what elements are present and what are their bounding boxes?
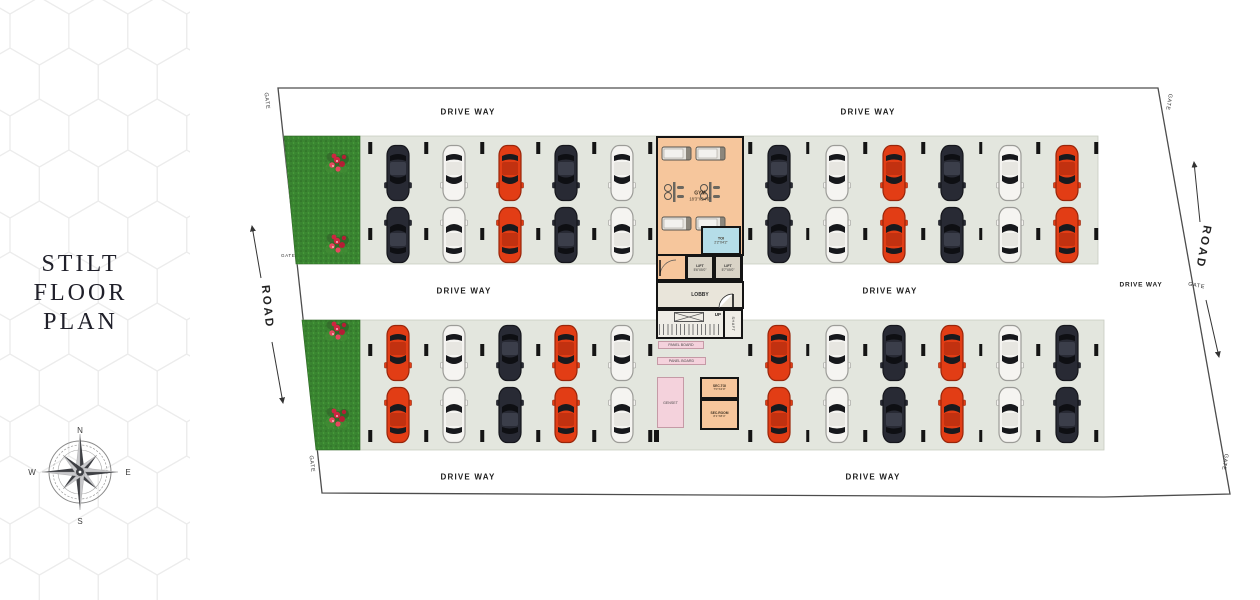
wall-stub <box>654 430 659 442</box>
security-toilet: SEC.TOI 7'0"X4'0" <box>700 377 739 399</box>
sec-toi-dim: 7'0"X4'0" <box>713 388 726 392</box>
toi-dim: 2'2"X4'2" <box>714 241 728 245</box>
driveway-label-bottom-left: DRIVE WAY <box>441 473 496 482</box>
stilt-floor-plan-sheet: STILT FLOOR PLAN N E S W <box>0 0 1260 600</box>
shaft-label: SHAFT <box>731 317 735 332</box>
driveway-label-mid-left: DRIVE WAY <box>437 287 492 296</box>
gym-dim: 18'3"X24'6" <box>689 197 710 202</box>
driveway-label-bottom-right: DRIVE WAY <box>846 473 901 482</box>
road-arrow-left-down <box>272 342 283 403</box>
genset: GENSET <box>657 377 684 428</box>
gym-vestibule <box>656 254 687 281</box>
security-room: SEC.ROOM 8'1"X8'4" <box>700 399 739 430</box>
panel-board-1-label: PANEL BOARD <box>668 343 693 347</box>
panel-board-2-label: PANEL BOARD <box>669 359 694 363</box>
lobby-label: LOBBY <box>691 292 709 298</box>
lift-right-dim: 5'7"X5'0" <box>722 268 735 272</box>
site-plan-base <box>0 0 1260 600</box>
shaft: SHAFT <box>723 309 743 339</box>
staircase: UP <box>656 309 725 339</box>
road-arrow-left-up <box>252 226 261 278</box>
panel-board-1: PANEL BOARD <box>658 341 704 349</box>
stairs-up-label: UP <box>715 312 721 317</box>
driveway-label-right-exit: DRIVE WAY <box>1119 282 1162 289</box>
toilet-room: TOI 2'2"X4'2" <box>701 226 741 255</box>
stair-treads <box>659 324 720 335</box>
driveway-label-top-left: DRIVE WAY <box>441 108 496 117</box>
stair-flight-x <box>674 312 704 322</box>
panel-board-2: PANEL BOARD <box>657 357 706 365</box>
lift-left-dim: 5'6"X5'0" <box>694 268 707 272</box>
driveway-label-top-right: DRIVE WAY <box>841 108 896 117</box>
lift-left: LIFT 5'6"X5'0" <box>685 254 715 281</box>
lobby-door-swing-icon <box>716 291 742 309</box>
gate-label-left-mid: GATE <box>281 253 295 258</box>
sec-room-dim: 8'1"X8'4" <box>711 415 729 419</box>
genset-label: GENSET <box>663 401 678 405</box>
road-arrow-right-down <box>1206 300 1219 357</box>
lift-right: LIFT 5'7"X5'0" <box>713 254 743 281</box>
door-swing-icon <box>658 256 684 278</box>
lawn-top <box>284 136 360 264</box>
driveway-label-mid-right: DRIVE WAY <box>863 287 918 296</box>
road-arrow-right-up <box>1194 162 1200 222</box>
